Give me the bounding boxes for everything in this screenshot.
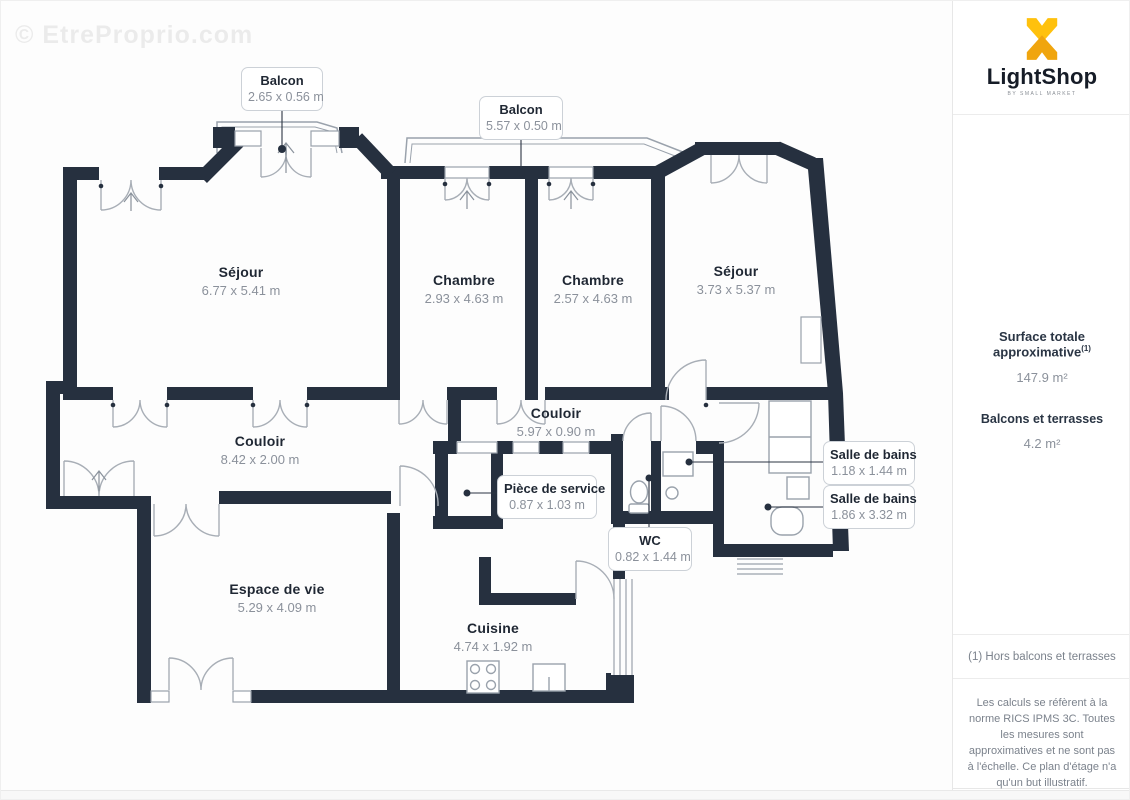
- callout-balcon-1: Balcon 2.65 x 0.56 m: [241, 67, 323, 111]
- washbasin-icon: [787, 477, 809, 499]
- window-arrows: [92, 143, 578, 491]
- callout-wc: WC 0.82 x 1.44 m: [608, 527, 692, 571]
- floorplan-drawing: [1, 1, 953, 800]
- surface-summary: Surface totale approximative(1) 147.9 m²…: [953, 115, 1130, 451]
- callout-salle-de-bains-2: Salle de bains 1.86 x 3.32 m: [823, 485, 915, 529]
- surface-total-title: Surface totale approximative(1): [953, 329, 1130, 359]
- info-sidebar: LightShop BY SMALL MARKET Surface totale…: [952, 1, 1130, 800]
- balconies-value: 4.2 m²: [953, 436, 1130, 451]
- brand-name: LightShop: [987, 64, 1098, 90]
- toilet-icon: [631, 481, 648, 503]
- room-label-chambre-1: Chambre 2.93 x 4.63 m: [425, 272, 504, 306]
- room-label-couloir-2: Couloir 5.97 x 0.90 m: [517, 405, 596, 439]
- callout-piece-de-service: Pièce de service 0.87 x 1.03 m: [497, 475, 597, 519]
- room-label-sejour-left: Séjour 6.77 x 5.41 m: [202, 264, 281, 298]
- room-label-chambre-2: Chambre 2.57 x 4.63 m: [554, 272, 633, 306]
- room-label-cuisine: Cuisine 4.74 x 1.92 m: [454, 620, 533, 654]
- lightshop-logo-icon: [1023, 18, 1061, 60]
- bathtub-icon: [771, 507, 803, 535]
- callout-balcon-2: Balcon 5.57 x 0.50 m: [479, 96, 563, 140]
- room-label-espace-de-vie: Espace de vie 5.29 x 4.09 m: [229, 581, 324, 615]
- room-label-sejour-right: Séjour 3.73 x 5.37 m: [697, 263, 776, 297]
- windows: [151, 131, 821, 702]
- bottom-edge: [1, 790, 1130, 800]
- floorplan-page: © EtreProprio.com: [0, 0, 1130, 800]
- brand-tagline: BY SMALL MARKET: [1008, 91, 1077, 97]
- kitchen-window: [611, 579, 637, 675]
- exterior-steps: [737, 559, 783, 574]
- floorplan-canvas: © EtreProprio.com: [1, 1, 953, 800]
- washbasin-icon: [666, 487, 678, 499]
- callout-salle-de-bains-1: Salle de bains 1.18 x 1.44 m: [823, 441, 915, 485]
- balconies-title: Balcons et terrasses: [953, 412, 1130, 426]
- footnote-marker: (1): [1081, 344, 1091, 353]
- room-label-couloir-1: Couloir 8.42 x 2.00 m: [221, 433, 300, 467]
- surface-total-value: 147.9 m²: [953, 370, 1130, 385]
- footnote: (1) Hors balcons et terrasses: [953, 634, 1130, 679]
- balcony-outlines: [217, 122, 693, 163]
- disclaimer-text: Les calculs se réfèrent à la norme RICS …: [966, 696, 1118, 792]
- legal-section: Les calculs se réfèrent à la norme RICS …: [953, 679, 1130, 789]
- lightshop-logo: LightShop BY SMALL MARKET: [953, 1, 1130, 115]
